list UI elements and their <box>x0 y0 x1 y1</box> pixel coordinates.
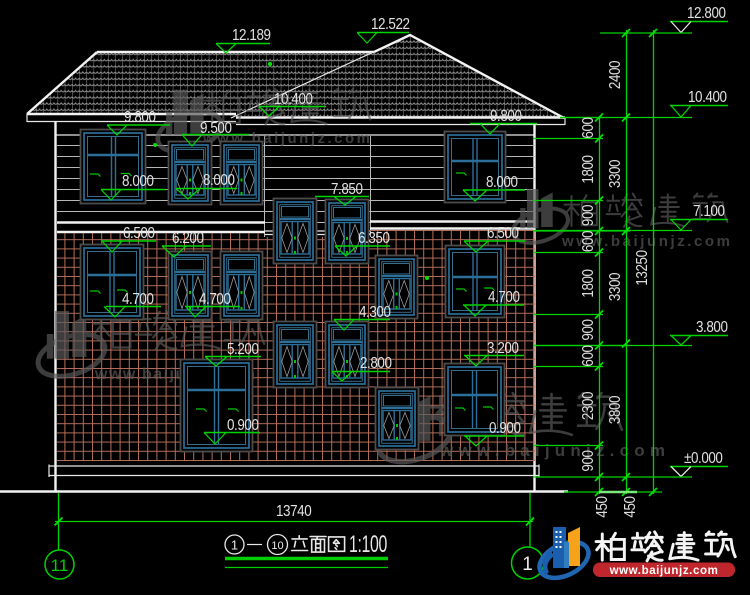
svg-text:1: 1 <box>522 554 533 575</box>
svg-text:3300: 3300 <box>607 160 624 188</box>
svg-text:6.500: 6.500 <box>123 225 155 242</box>
svg-text:450: 450 <box>622 496 639 517</box>
svg-text:12.522: 12.522 <box>371 16 410 33</box>
svg-text:900: 900 <box>580 450 597 471</box>
svg-text:10: 10 <box>271 540 283 552</box>
svg-text:2400: 2400 <box>607 61 624 89</box>
svg-text:6.500: 6.500 <box>487 225 519 242</box>
svg-text:2300: 2300 <box>580 392 597 420</box>
svg-text:8.000: 8.000 <box>203 172 235 189</box>
svg-text:1800: 1800 <box>580 155 597 183</box>
svg-text:600: 600 <box>580 345 597 366</box>
svg-text:8.000: 8.000 <box>486 174 518 191</box>
svg-text:1:100: 1:100 <box>349 532 387 558</box>
svg-text:3.800: 3.800 <box>696 319 728 336</box>
svg-text:±0.000: ±0.000 <box>684 450 723 467</box>
svg-text:3800: 3800 <box>607 396 624 424</box>
svg-text:10.400: 10.400 <box>688 89 727 106</box>
svg-text:7.100: 7.100 <box>693 203 725 220</box>
svg-text:0.900: 0.900 <box>489 420 521 437</box>
svg-text:900: 900 <box>580 205 597 226</box>
svg-text:1800: 1800 <box>580 269 597 297</box>
svg-text:12.189: 12.189 <box>232 27 271 44</box>
svg-text:1: 1 <box>231 538 238 553</box>
svg-text:8.000: 8.000 <box>122 173 154 190</box>
svg-text:450: 450 <box>594 496 611 517</box>
svg-text:www.baijunjz.com: www.baijunjz.com <box>609 565 719 577</box>
svg-text:2.800: 2.800 <box>360 355 392 372</box>
svg-text:600: 600 <box>580 231 597 252</box>
svg-text:4.700: 4.700 <box>488 289 520 306</box>
svg-text:6.200: 6.200 <box>172 230 204 247</box>
svg-text:13250: 13250 <box>634 250 651 285</box>
svg-text:900: 900 <box>580 319 597 340</box>
svg-text:12.800: 12.800 <box>687 5 726 22</box>
svg-text:600: 600 <box>580 117 597 138</box>
svg-text:11: 11 <box>51 556 69 575</box>
svg-text:6.350: 6.350 <box>358 230 390 247</box>
svg-text:3300: 3300 <box>607 273 624 301</box>
svg-text:9.800: 9.800 <box>124 109 156 126</box>
svg-text:13740: 13740 <box>276 503 311 520</box>
